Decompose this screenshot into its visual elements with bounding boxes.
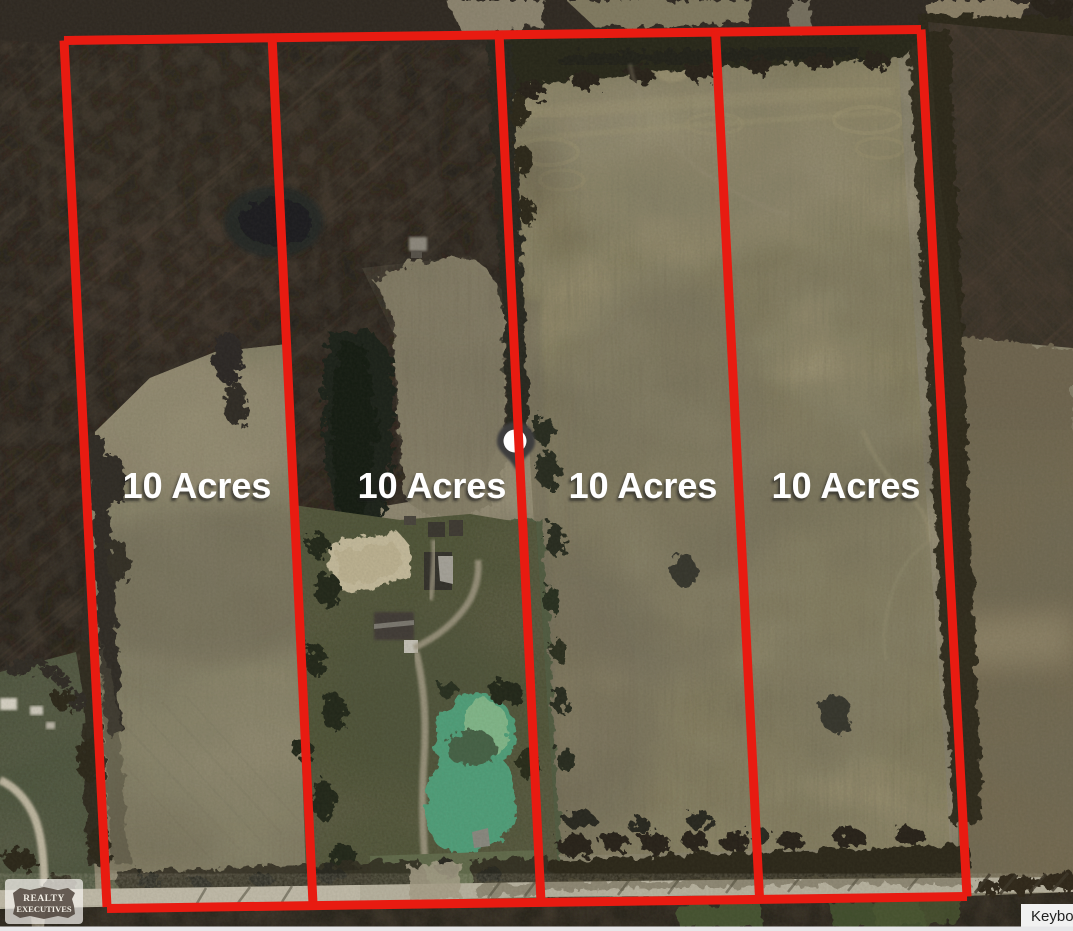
svg-text:10 Acres: 10 Acres bbox=[569, 465, 718, 506]
svg-text:10 Acres: 10 Acres bbox=[123, 465, 272, 506]
svg-text:REALTY: REALTY bbox=[23, 894, 65, 904]
svg-text:EXECUTIVES: EXECUTIVES bbox=[16, 904, 72, 914]
svg-text:Keybo: Keybo bbox=[1031, 908, 1073, 925]
svg-text:10 Acres: 10 Acres bbox=[772, 465, 921, 506]
svg-text:10 Acres: 10 Acres bbox=[358, 465, 507, 506]
